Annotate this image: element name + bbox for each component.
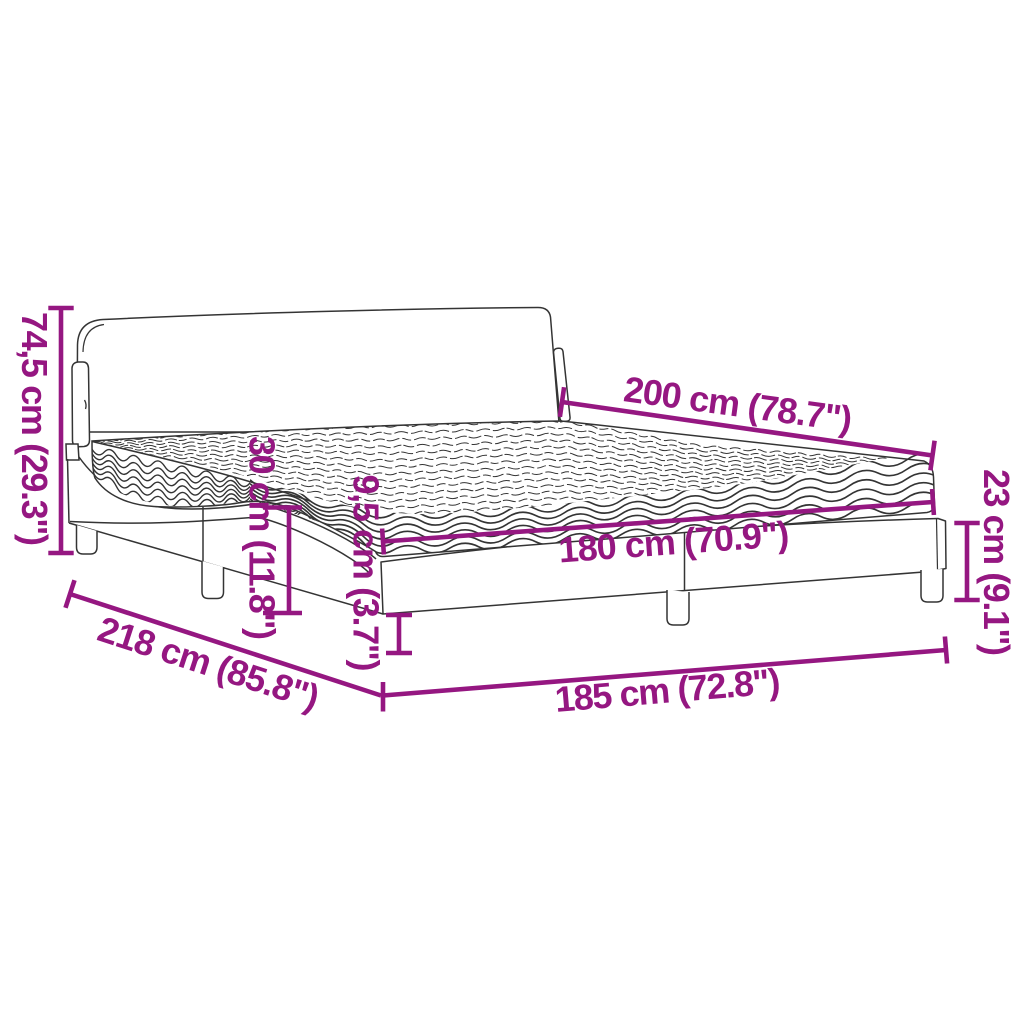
svg-text:23 cm (9.1"): 23 cm (9.1") [976,469,1017,656]
svg-text:74,5 cm (29.3"): 74,5 cm (29.3") [14,312,55,546]
svg-text:30 cm (11.8"): 30 cm (11.8") [242,436,283,640]
svg-text:9,5 cm (3.7"): 9,5 cm (3.7") [346,475,387,672]
